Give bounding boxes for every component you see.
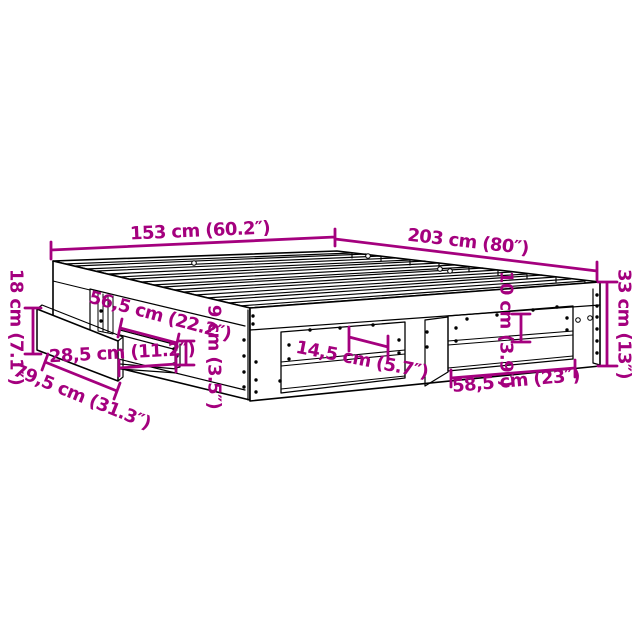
bed-frame-diagram: 153 cm (60.2″) 203 cm (80″) 33 cm (13″) … xyxy=(0,0,640,640)
dim-label-frame-height: 33 cm (13″) xyxy=(614,269,635,379)
dim-label-drawer-rail-height: 9 cm (3.5″) xyxy=(204,305,225,409)
bed-frame-drawing xyxy=(0,0,640,640)
